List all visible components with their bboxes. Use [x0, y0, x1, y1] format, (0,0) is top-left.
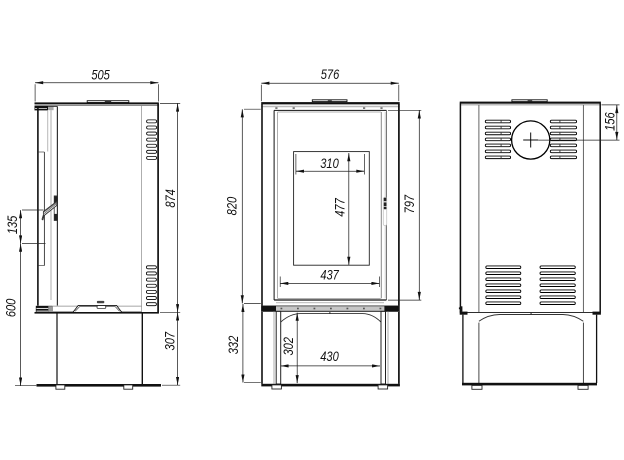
svg-text:307: 307: [161, 331, 177, 350]
svg-text:156: 156: [601, 112, 617, 131]
svg-text:576: 576: [321, 66, 340, 82]
svg-text:874: 874: [162, 189, 178, 208]
svg-text:600: 600: [3, 298, 19, 317]
svg-text:437: 437: [320, 266, 339, 282]
svg-text:820: 820: [224, 197, 240, 216]
svg-text:477: 477: [332, 197, 348, 216]
svg-text:135: 135: [4, 215, 20, 234]
svg-text:430: 430: [320, 348, 339, 364]
svg-text:505: 505: [91, 66, 110, 82]
svg-text:310: 310: [320, 155, 339, 171]
svg-text:302: 302: [280, 337, 296, 356]
svg-text:797: 797: [401, 194, 417, 213]
svg-text:332: 332: [225, 336, 241, 355]
